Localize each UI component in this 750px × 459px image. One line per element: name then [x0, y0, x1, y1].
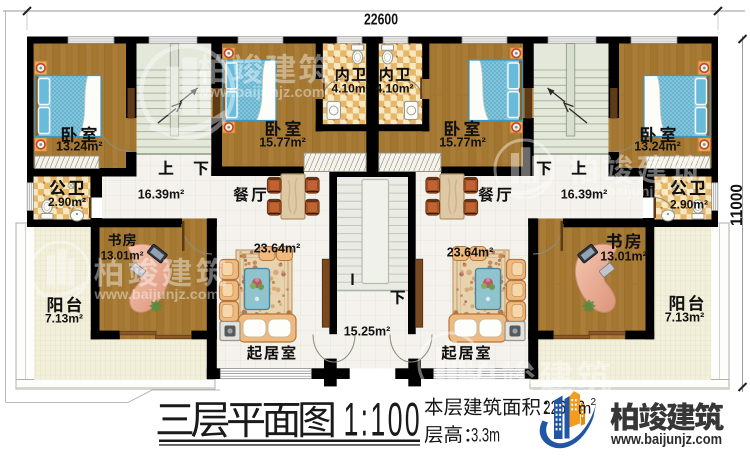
svg-text:13.24m²: 13.24m² — [634, 140, 681, 154]
svg-text:www.baijunjz.com: www.baijunjz.com — [610, 432, 722, 448]
svg-text:15.77m²: 15.77m² — [259, 136, 306, 150]
svg-text:7.13m²: 7.13m² — [665, 311, 705, 325]
svg-text:4.10m²: 4.10m² — [331, 82, 369, 96]
svg-text:2.90m²: 2.90m² — [670, 198, 708, 212]
svg-text:13.24m²: 13.24m² — [56, 140, 103, 154]
svg-text:15.25m²: 15.25m² — [344, 325, 391, 339]
svg-text:2: 2 — [591, 397, 597, 408]
svg-text:16.39m²: 16.39m² — [138, 188, 185, 202]
svg-text:4.10m²: 4.10m² — [375, 82, 413, 96]
svg-text:11000: 11000 — [727, 184, 746, 226]
svg-text:16.39m²: 16.39m² — [561, 188, 608, 202]
svg-text:15.77m²: 15.77m² — [439, 136, 486, 150]
svg-text:13.01m²: 13.01m² — [600, 250, 647, 264]
svg-text:2.90m²: 2.90m² — [48, 195, 86, 209]
svg-text:www.baijunjz.com: www.baijunjz.com — [93, 287, 219, 302]
svg-text:23.64m²: 23.64m² — [254, 242, 301, 256]
svg-text:7.13m²: 7.13m² — [45, 312, 83, 326]
svg-text:www.baijunjz.com: www.baijunjz.com — [196, 84, 325, 101]
svg-text:13.01m²: 13.01m² — [101, 251, 144, 263]
svg-text:m: m — [578, 401, 591, 418]
svg-text:3.3m: 3.3m — [471, 426, 500, 447]
svg-text:1:100: 1:100 — [344, 394, 422, 447]
svg-text:23.64m²: 23.64m² — [447, 246, 494, 260]
svg-text:22600: 22600 — [364, 12, 398, 29]
